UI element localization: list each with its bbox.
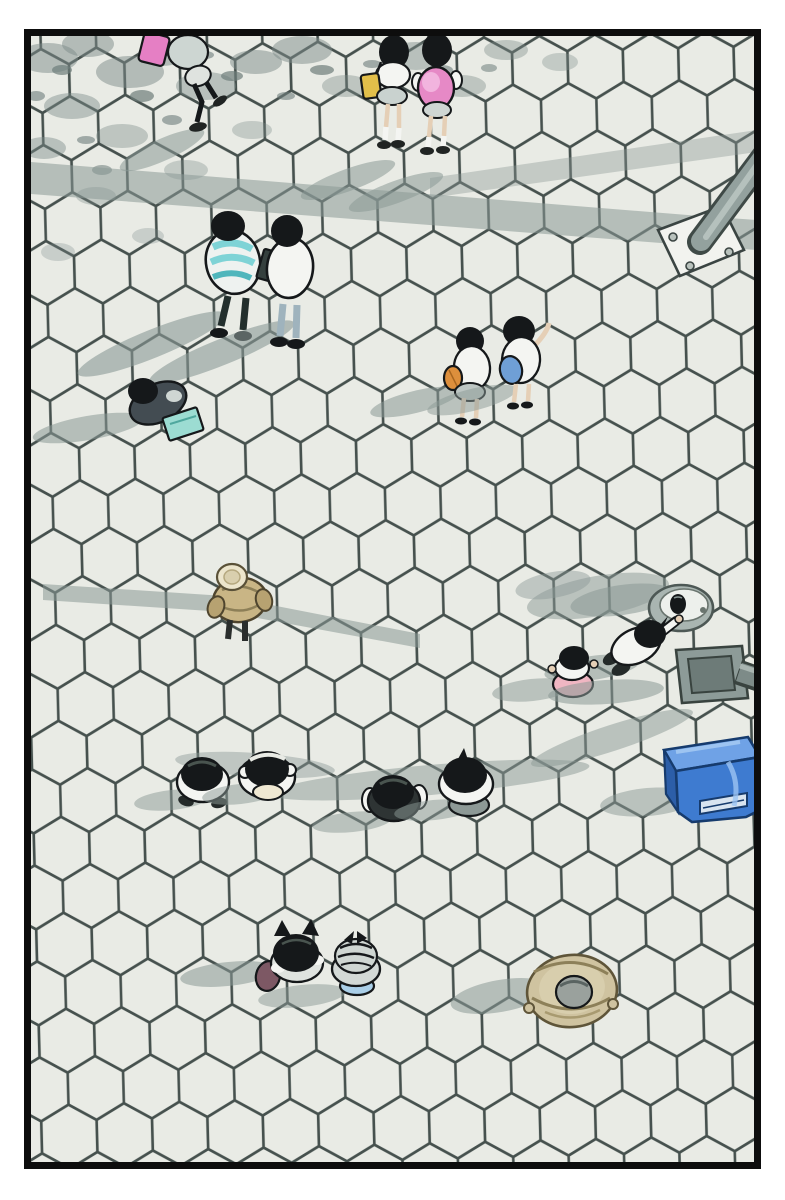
girl-yellow-bag-part	[377, 141, 391, 149]
foliage-canopy-shadow-part	[484, 40, 528, 60]
student-white-shirt-part	[270, 337, 288, 347]
foliage-canopy-shadow-part	[221, 71, 243, 81]
foliage-canopy-shadow-part	[232, 121, 272, 139]
foliage-canopy-shadow-part	[132, 228, 164, 244]
hat-man-part	[228, 620, 230, 639]
street-pole-top-right-part	[725, 248, 733, 256]
girl-pink-backpack-part	[420, 147, 434, 155]
girl-yellow-bag-part	[376, 62, 410, 88]
foliage-canopy-shadow-part	[44, 93, 100, 119]
girl-pink-backpack-part	[443, 136, 444, 147]
girl-blue-bag-part	[528, 384, 529, 401]
street-pole-top-right-part	[686, 262, 694, 270]
girl-yellow-bag-part	[377, 87, 407, 105]
tan-coat-person-part	[608, 999, 618, 1009]
tan-coat-person-part	[524, 1003, 534, 1013]
panel-content	[0, 0, 785, 1200]
foliage-canopy-shadow-part	[41, 243, 75, 261]
hair	[271, 215, 303, 247]
street-pole-mid-right-part	[688, 656, 735, 693]
student-white-shirt-part	[280, 304, 283, 336]
runner-top-left-part	[168, 35, 208, 69]
hair	[443, 757, 487, 793]
girl-pink-backpack-part	[429, 116, 431, 137]
person-reaching-fountain-part	[675, 615, 683, 623]
drinking-fountain-part	[700, 607, 706, 613]
hair	[128, 378, 158, 404]
comic-page	[0, 0, 785, 1200]
girl-yellow-bag-part	[386, 104, 388, 127]
foliage-canopy-shadow-part	[542, 53, 578, 71]
girl-yellow-bag-part	[398, 128, 399, 141]
student-teal-backpack-part	[210, 328, 228, 338]
girl-orange-bag-part	[469, 419, 481, 426]
foliage-canopy-shadow-part	[96, 124, 148, 148]
girl-yellow-bag-part	[385, 127, 386, 140]
girl-pink-backpack-part	[444, 116, 445, 136]
student-white-shirt-part	[287, 339, 305, 349]
girl-orange-bag-part	[455, 418, 467, 425]
foliage-canopy-shadow-part	[272, 36, 332, 64]
foliage-canopy-shadow-part	[481, 64, 497, 72]
person-teal-folder-part	[166, 390, 182, 402]
foliage-canopy-shadow-part	[310, 65, 334, 75]
hair	[211, 211, 245, 241]
hair	[422, 33, 452, 67]
girl-pink-backpack-part	[422, 72, 440, 92]
foliage-canopy-shadow-part	[77, 136, 95, 144]
girl-blue-bag-part	[514, 384, 516, 402]
student-white-shirt-part	[296, 305, 297, 338]
street-pole-top-right-part	[669, 233, 677, 241]
girl-blue-bag-part	[521, 402, 533, 409]
plaza-overhead-illustration	[0, 0, 785, 1200]
girl-pink-backpack-part	[428, 137, 429, 148]
girl-yellow-bag-part	[391, 140, 405, 148]
hat-man-part	[224, 570, 240, 584]
foliage-canopy-shadow-part	[52, 65, 72, 75]
foliage-canopy-shadow-part	[162, 115, 182, 125]
girl-pink-backpack-part	[423, 102, 451, 118]
girl-blue-bag-part	[507, 403, 519, 410]
friend-2-part	[253, 784, 283, 800]
pink-shoulder-bag	[138, 31, 170, 66]
foliage-canopy-shadow-part	[130, 90, 154, 102]
person-pink-skirt-part	[548, 665, 556, 673]
person-pink-skirt-part	[590, 660, 598, 668]
hair	[559, 646, 589, 670]
student-teal-backpack-part	[243, 298, 246, 330]
girl-pink-backpack-part	[436, 146, 450, 154]
foliage-canopy-shadow-part	[277, 92, 295, 100]
